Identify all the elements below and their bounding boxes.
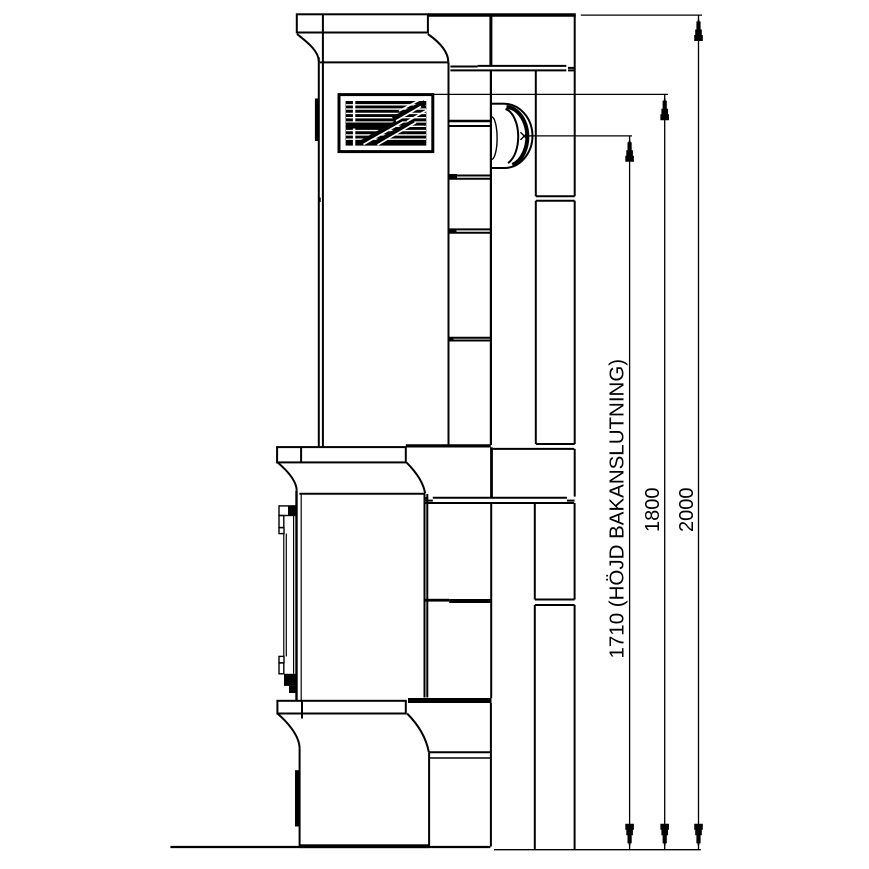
svg-text:1710 (HÖJD BAKANSLUTNING): 1710 (HÖJD BAKANSLUTNING) (605, 359, 628, 659)
svg-text:2000: 2000 (676, 488, 698, 533)
svg-text:1800: 1800 (642, 488, 664, 533)
